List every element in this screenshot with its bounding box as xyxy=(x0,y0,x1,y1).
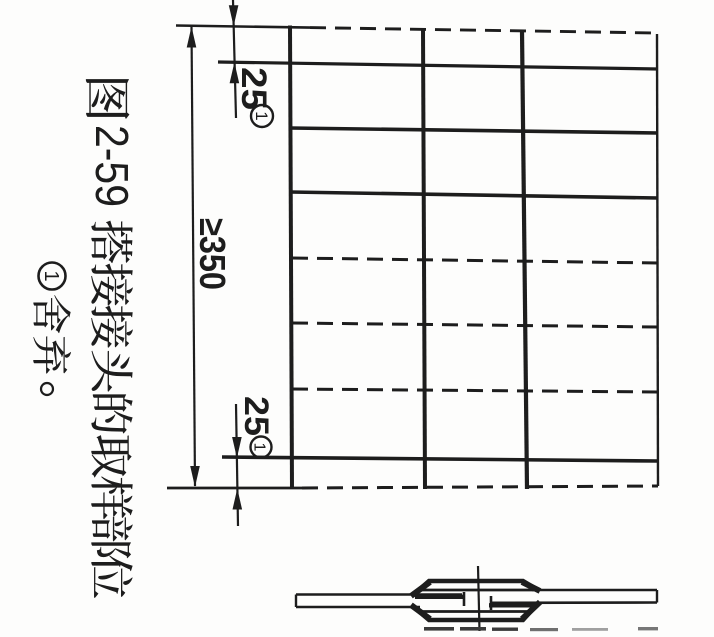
svg-text:1: 1 xyxy=(251,443,268,452)
svg-text:2-59: 2-59 xyxy=(86,125,138,207)
svg-text:25: 25 xyxy=(237,396,275,436)
svg-text:1: 1 xyxy=(40,270,62,281)
svg-text:25: 25 xyxy=(234,67,273,110)
svg-text:≥350: ≥350 xyxy=(192,218,233,290)
svg-text:1: 1 xyxy=(252,111,271,120)
